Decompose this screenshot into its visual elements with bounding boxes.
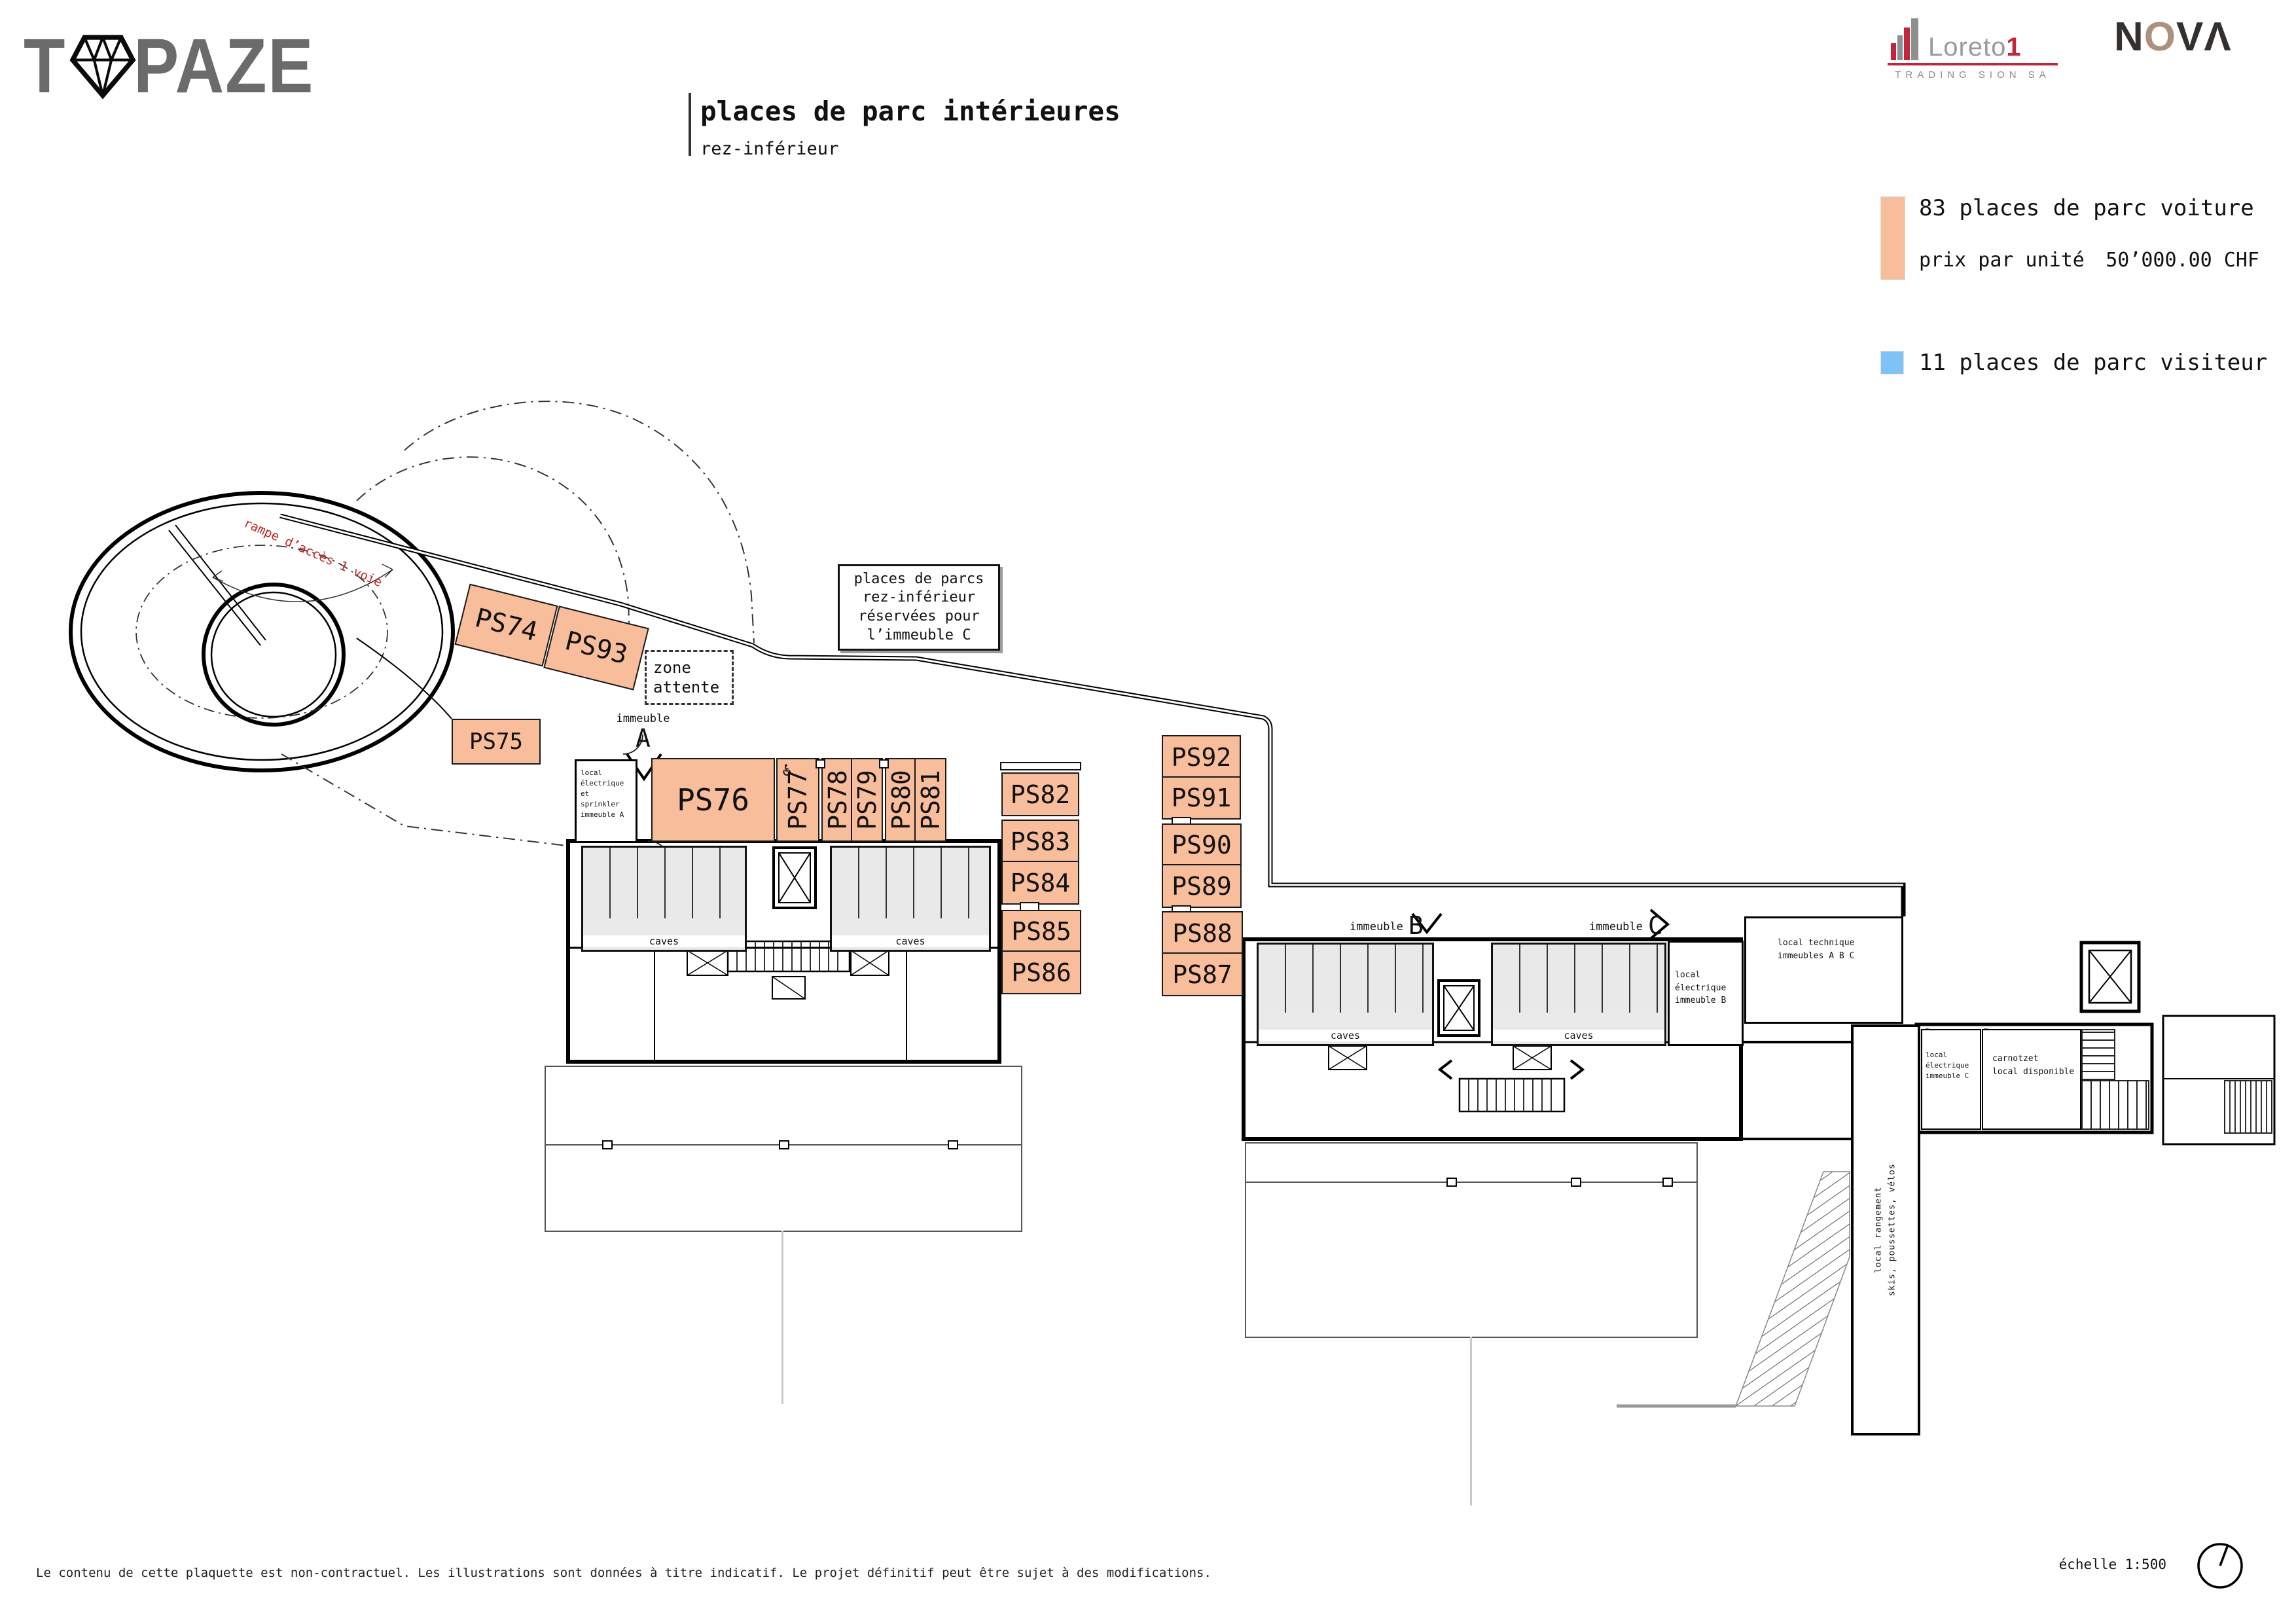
room-label: local électrique et sprinkler immeuble A xyxy=(581,768,636,820)
parking-space-ps78: PS78 xyxy=(821,758,853,842)
label-immeuble-a: immeuble A xyxy=(609,713,677,751)
caves-label: caves xyxy=(1259,1030,1432,1041)
parking-space-ps80: PS80 xyxy=(885,758,917,842)
parking-space-label: PS74 xyxy=(472,603,541,647)
terrace-tick xyxy=(1571,1178,1581,1187)
room-label: local rangement skis, poussettes, vélos xyxy=(1872,1163,1899,1296)
legend-car-swatch xyxy=(1880,196,1905,280)
parking-space-ps87: PS87 xyxy=(1162,952,1243,996)
cave-compartments xyxy=(1493,945,1664,1013)
terrace-bc xyxy=(1245,1142,1698,1338)
room-electrique-b: local électrique immeuble B xyxy=(1668,941,1744,1046)
terrace-a xyxy=(545,1066,1022,1232)
room-label: local électrique immeuble B xyxy=(1675,969,1742,1007)
parking-space-label: PS90 xyxy=(1172,831,1232,859)
parking-space-ps76: PS76 xyxy=(651,758,775,842)
loreto-name: Loreto xyxy=(1928,34,2006,60)
terrace-tick xyxy=(1446,1178,1457,1187)
nova-n: N xyxy=(2114,14,2144,60)
wall-segment xyxy=(1000,762,1081,770)
immeuble-word: immeuble xyxy=(1589,920,1643,933)
caves-b: caves xyxy=(1257,943,1434,1046)
parking-space-label: PS89 xyxy=(1172,872,1232,901)
room-label: local électrique immeuble C xyxy=(1926,1050,1980,1081)
room-carnotzet: carnotzet local disponible xyxy=(1982,1029,2081,1130)
footer-disclaimer: Le contenu de cette plaquette est non-co… xyxy=(36,1566,1211,1580)
roadway xyxy=(280,516,1903,916)
scale-label: échelle 1:500 xyxy=(2042,1557,2166,1572)
caves-c: caves xyxy=(1491,943,1666,1046)
section-line xyxy=(1470,1337,1472,1506)
legend-visitor-count: 11 places de parc visiteur xyxy=(1919,350,2267,376)
zone-attente-box: zone attente xyxy=(645,650,734,705)
terrace-tick xyxy=(779,1140,789,1149)
parking-space-ps84: PS84 xyxy=(1001,861,1079,905)
page-title: places de parc intérieures xyxy=(700,96,1121,127)
parking-space-ps81: PS81 xyxy=(914,758,946,842)
parking-space-label: PS76 xyxy=(677,782,749,818)
room-electrique-c: local électrique immeuble C xyxy=(1921,1029,1981,1130)
immeuble-word: immeuble xyxy=(1350,920,1403,933)
parking-space-ps83: PS83 xyxy=(1001,820,1079,863)
terrace-tick xyxy=(948,1140,958,1149)
parking-space-label: PS91 xyxy=(1172,784,1232,812)
stairs-right-wing xyxy=(2081,1080,2149,1130)
diamond-icon xyxy=(69,26,136,103)
parking-space-label: PS86 xyxy=(1011,958,1071,987)
nova-o: O xyxy=(2144,14,2176,60)
parking-space-ps85: PS85 xyxy=(1001,910,1081,953)
parking-space-label: PS87 xyxy=(1172,960,1232,989)
parking-space-label: PS80 xyxy=(887,770,916,830)
parking-space-label: PS75 xyxy=(469,729,523,755)
terrace-edge xyxy=(1246,1182,1696,1183)
caves-a-right: caves xyxy=(830,846,991,952)
brand-letter-t: T xyxy=(24,27,66,105)
parking-space-label: PS83 xyxy=(1011,827,1071,856)
parking-space-label: PS88 xyxy=(1172,919,1232,948)
pillar xyxy=(879,759,889,768)
plan-linework xyxy=(0,0,2296,1624)
immeuble-letter-c: C xyxy=(1648,911,1663,940)
nova-va: VΛ xyxy=(2176,14,2232,60)
corridor-rangement: local rangement skis, poussettes, vélos xyxy=(1851,1024,1920,1435)
caves-label: caves xyxy=(832,935,989,947)
loreto-one: 1 xyxy=(2006,34,2020,60)
legend-visitor-swatch xyxy=(1880,351,1904,374)
loreto-divider xyxy=(1888,63,2058,65)
parking-space-ps79: PS79 xyxy=(851,758,883,842)
title-accent-bar xyxy=(689,93,691,156)
legend-price-value: 50’000.00 CHF xyxy=(2055,249,2259,272)
parking-space-label: PS93 xyxy=(562,626,631,670)
cave-compartments xyxy=(832,848,989,918)
compass-icon xyxy=(2198,1544,2242,1587)
terrace-tick xyxy=(1662,1178,1673,1187)
stair-hatch-cell xyxy=(2224,1080,2272,1134)
parking-space-label: PS81 xyxy=(916,770,945,830)
immeuble-letter-b: B xyxy=(1408,911,1424,940)
caves-label: caves xyxy=(1493,1030,1664,1041)
room-electrique-sprinkler-a: local électrique et sprinkler immeuble A xyxy=(575,759,637,843)
cave-compartments xyxy=(1259,945,1432,1013)
brochure-page: T PAZE places de parc intérieures rez-in… xyxy=(0,0,2296,1624)
parking-space-label: PS92 xyxy=(1172,743,1232,772)
legend-car-count: 83 places de parc voiture xyxy=(1919,195,2254,221)
immeuble-word: immeuble xyxy=(609,713,677,725)
room-label: carnotzet local disponible xyxy=(1992,1053,2080,1078)
loreto-buildings-icon xyxy=(1888,17,1926,60)
parking-space-label: PS79 xyxy=(853,770,882,830)
parking-space-ps91: PS91 xyxy=(1162,776,1241,820)
nova-logo: NOVΛ xyxy=(2114,17,2232,58)
cave-compartments xyxy=(583,848,745,918)
label-immeuble-b: immeuble B xyxy=(1350,911,1424,940)
stairs-right-upper xyxy=(2081,1029,2115,1080)
caves-label: caves xyxy=(583,935,745,947)
pillar xyxy=(816,759,825,768)
label-immeuble-c: immeuble C xyxy=(1589,911,1663,940)
parking-space-label: PS85 xyxy=(1011,917,1071,946)
parking-space-label: PS82 xyxy=(1011,780,1071,809)
parking-space-label: PS84 xyxy=(1011,869,1071,897)
terrace-tick xyxy=(602,1140,613,1149)
caves-a-left: caves xyxy=(581,846,747,952)
parking-space-label: PS78 xyxy=(823,770,852,830)
immeuble-letter-a: A xyxy=(609,726,677,751)
parking-space-ps89: PS89 xyxy=(1162,864,1242,908)
parking-space-label: PS77 xyxy=(783,770,812,830)
section-line xyxy=(781,1231,783,1404)
parking-space-ps90: PS90 xyxy=(1162,823,1242,867)
loreto-logo: Loreto 1 TRADING SION SA xyxy=(1888,17,2058,81)
brand-letters-paze: PAZE xyxy=(134,27,314,105)
note-box-immeuble-c: places de parcs rez-inférieur réservées … xyxy=(838,564,1000,651)
parking-space-ps77-accessible: ♿ PS77 xyxy=(776,758,819,842)
room-technique-abc: local technique immeubles A B C xyxy=(1744,916,1903,1024)
parking-space-ps82: PS82 xyxy=(1001,772,1079,816)
loreto-tagline: TRADING SION SA xyxy=(1888,69,2058,81)
parking-space-ps92: PS92 xyxy=(1162,735,1241,779)
parking-space-ps88: PS88 xyxy=(1162,911,1243,955)
parking-space-ps75: PS75 xyxy=(452,719,541,765)
page-subtitle: rez-inférieur xyxy=(700,139,838,159)
room-label: local technique immeubles A B C xyxy=(1778,937,1901,962)
brand-logo: T PAZE xyxy=(24,26,339,105)
parking-space-ps86: PS86 xyxy=(1001,950,1081,994)
